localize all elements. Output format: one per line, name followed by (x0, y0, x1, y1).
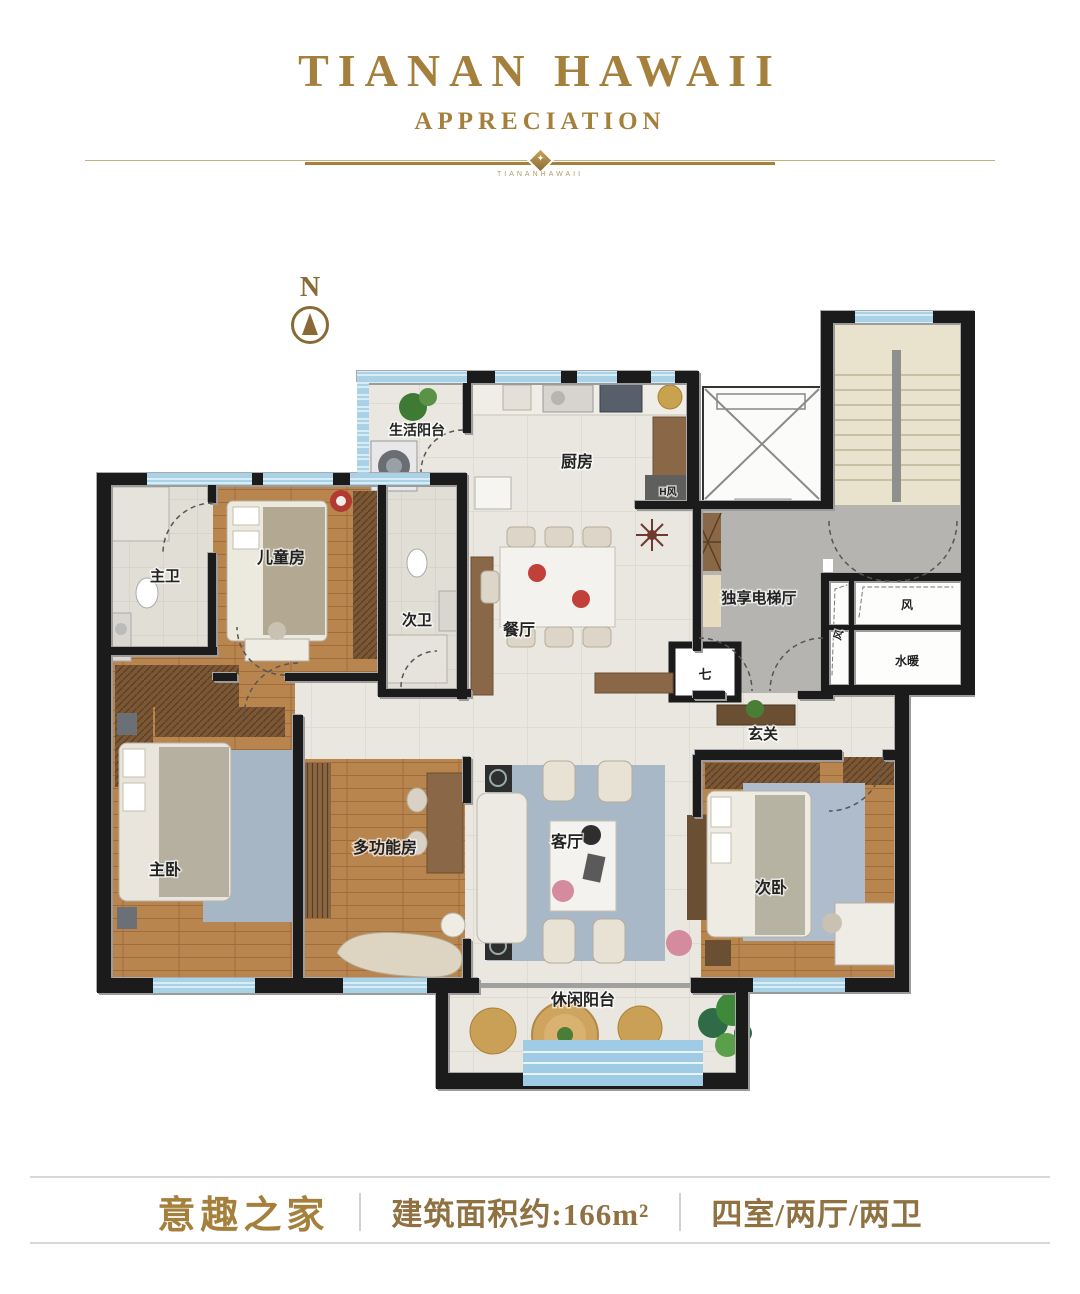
plant-icon (419, 388, 437, 406)
shower (387, 635, 447, 683)
kitchen-sink (543, 385, 593, 412)
room-label-foyer: 玄关 (748, 725, 778, 743)
stair-rail (892, 350, 901, 502)
label-air-shaft: 风 (901, 598, 913, 612)
room-label-master-bath: 主卫 (150, 567, 180, 585)
appliance (475, 477, 511, 509)
brand-title: TIANAN HAWAII (0, 44, 1080, 97)
room-label-second-bedroom: 次卧 (755, 878, 787, 897)
footer-bottom-rule (30, 1242, 1050, 1244)
desk (835, 903, 895, 965)
cabinet (595, 673, 673, 693)
room-label-leisure-balcony: 休闲阳台 (550, 990, 615, 1009)
nightstand (117, 907, 137, 929)
room-label-service-balcony: 生活阳台 (389, 422, 445, 438)
label-plumbing-shaft: 水暖 (895, 653, 920, 668)
toilet-icon (407, 549, 427, 577)
plan-name: 意趣之家 (157, 1184, 329, 1239)
closet (843, 757, 897, 785)
label-exhaust: H风 (659, 486, 676, 498)
floor-plan: 生活阳台 厨房 主卫 儿童房 次卫 餐厅 独享电梯厅 玄关 主卧 多功能房 客厅… (95, 295, 975, 1100)
plant-icon (746, 700, 764, 718)
label-flue: 七 (698, 667, 711, 682)
shower (111, 487, 169, 541)
room-label-elevator-hall: 独享电梯厅 (721, 589, 796, 607)
flower-icon (552, 880, 574, 902)
nightstand (705, 940, 731, 966)
header-divider: ✦ TIANANHAWAII (85, 158, 995, 184)
stove (600, 384, 642, 412)
wardrobe (353, 491, 379, 659)
room-label-kids-room: 儿童房 (256, 548, 305, 567)
patio-chair (470, 1008, 516, 1054)
room-label-multi-function: 多功能房 (353, 838, 417, 857)
desk (427, 773, 463, 873)
footer-separator (679, 1193, 681, 1231)
east-corridor-floor (833, 503, 961, 573)
footer-separator (359, 1193, 361, 1231)
dining-table (500, 547, 615, 627)
plan-layout: 四室/两厅/两卫 (711, 1189, 922, 1234)
footer-top-rule (30, 1176, 1050, 1178)
wardrobe (155, 707, 285, 737)
vanity (439, 591, 457, 631)
footer: 意趣之家 建筑面积约:166m² 四室/两厅/两卫 (0, 1184, 1080, 1239)
plan-area: 建筑面积约:166m² (391, 1189, 649, 1234)
kids-desk (245, 639, 309, 661)
sofa (477, 793, 527, 943)
bookshelf (303, 763, 331, 918)
nightstand (117, 713, 137, 735)
flower-icon (528, 564, 546, 582)
ornament-caption: TIANANHAWAII (85, 171, 995, 178)
flower-icon (572, 590, 590, 608)
side-table (441, 913, 465, 937)
bowl-icon (658, 385, 682, 409)
flower-icon (666, 930, 692, 956)
elevator-shaft (703, 387, 821, 507)
brand-subtitle: APPRECIATION (0, 108, 1080, 136)
room-label-kitchen: 厨房 (561, 452, 593, 471)
page: TIANAN HAWAII APPRECIATION ✦ TIANANHAWAI… (0, 0, 1080, 1294)
room-label-master-bedroom: 主卧 (149, 860, 181, 879)
room-label-second-bath: 次卫 (402, 611, 432, 629)
star-icon: ✦ (533, 152, 548, 167)
room-label-living-room: 客厅 (551, 832, 583, 851)
room-label-dining: 餐厅 (502, 620, 535, 639)
